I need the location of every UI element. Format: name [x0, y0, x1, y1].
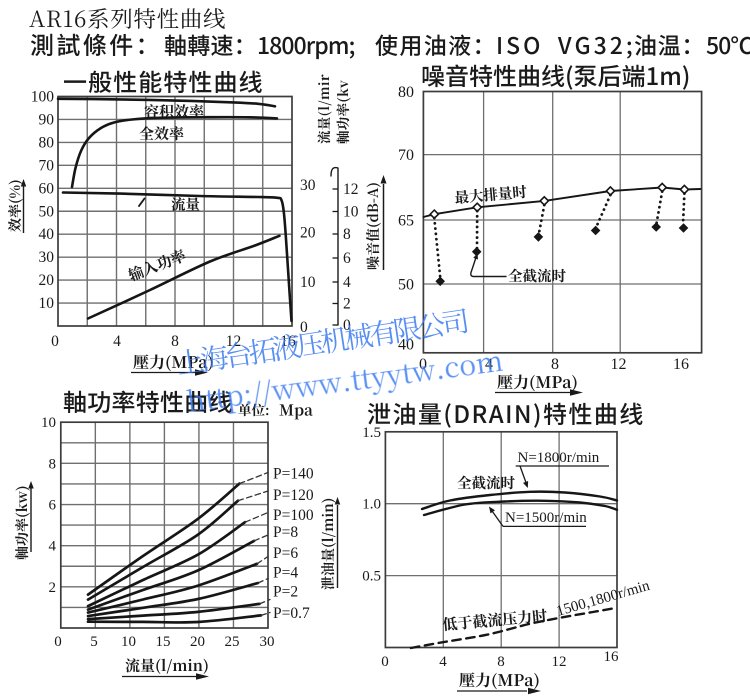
svg-text:15: 15	[156, 634, 171, 650]
svg-text:P=140: P=140	[273, 466, 314, 483]
svg-text:30: 30	[300, 177, 316, 194]
svg-text:P=100: P=100	[273, 507, 314, 524]
svg-text:10: 10	[121, 634, 136, 650]
svg-text:4: 4	[343, 274, 351, 291]
svg-text:6: 6	[343, 250, 351, 267]
svg-text:4: 4	[113, 333, 121, 350]
svg-text:60: 60	[39, 180, 55, 197]
svg-text:8: 8	[49, 456, 57, 472]
svg-text:80: 80	[39, 134, 55, 151]
svg-text:N=1800r/min: N=1800r/min	[518, 450, 600, 466]
svg-text:20: 20	[190, 634, 205, 650]
svg-text:4: 4	[439, 654, 447, 670]
svg-text:80: 80	[398, 84, 414, 101]
svg-text:10: 10	[343, 204, 359, 221]
svg-text:40: 40	[39, 226, 55, 243]
svg-text:P=6: P=6	[273, 545, 298, 562]
svg-text:8: 8	[343, 226, 351, 243]
svg-text:2: 2	[49, 580, 57, 596]
svg-text:20: 20	[39, 272, 55, 289]
svg-text:1.0: 1.0	[362, 497, 381, 513]
svg-text:0: 0	[381, 654, 389, 670]
svg-text:N=1500r/min: N=1500r/min	[505, 510, 587, 526]
svg-text:6: 6	[49, 498, 57, 514]
svg-text:10: 10	[39, 295, 55, 312]
svg-text:8: 8	[551, 356, 559, 373]
svg-text:8: 8	[171, 333, 179, 350]
svg-text:12: 12	[611, 356, 627, 373]
svg-text:P=4: P=4	[273, 565, 298, 582]
svg-text:12: 12	[343, 181, 359, 198]
svg-text:0: 0	[51, 333, 59, 350]
svg-text:65: 65	[398, 213, 414, 230]
svg-text:8: 8	[497, 654, 505, 670]
svg-text:50: 50	[398, 277, 414, 294]
svg-text:5: 5	[90, 634, 98, 650]
svg-text:0.5: 0.5	[362, 569, 381, 585]
svg-text:16: 16	[673, 356, 689, 373]
svg-text:1.5: 1.5	[362, 425, 381, 441]
svg-text:100: 100	[31, 89, 55, 106]
svg-text:2: 2	[343, 296, 351, 313]
svg-text:50: 50	[39, 203, 55, 220]
svg-text:10: 10	[300, 274, 316, 291]
svg-text:4: 4	[49, 539, 57, 555]
svg-text:25: 25	[225, 634, 240, 650]
svg-text:40: 40	[398, 337, 414, 354]
svg-text:P=120: P=120	[273, 487, 314, 504]
svg-text:P=8: P=8	[273, 524, 298, 541]
svg-text:30: 30	[260, 634, 275, 650]
svg-text:12: 12	[552, 654, 567, 670]
svg-text:30: 30	[39, 249, 55, 266]
svg-text:90: 90	[39, 111, 55, 128]
svg-text:10: 10	[41, 415, 56, 431]
svg-text:P=0.7: P=0.7	[273, 605, 310, 622]
svg-text:20: 20	[300, 225, 316, 242]
svg-text:16: 16	[604, 649, 620, 665]
svg-text:70: 70	[39, 157, 55, 174]
svg-text:70: 70	[398, 147, 414, 164]
svg-text:0: 0	[54, 634, 62, 650]
svg-text:1500,1800r/min: 1500,1800r/min	[555, 578, 652, 620]
svg-text:P=2: P=2	[273, 584, 298, 601]
